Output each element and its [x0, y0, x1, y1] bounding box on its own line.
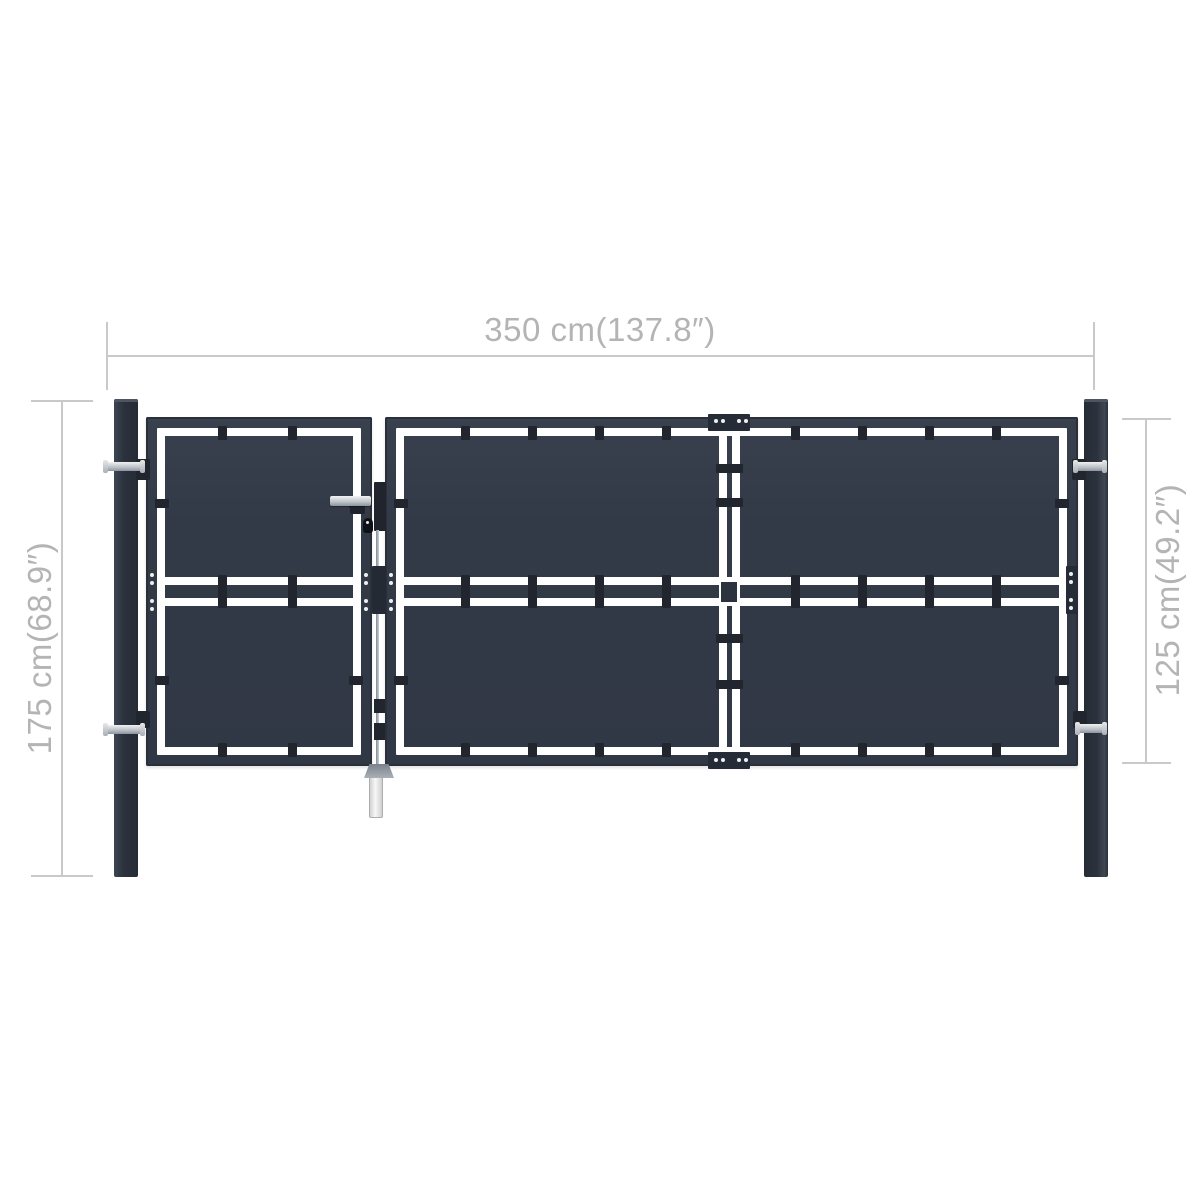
rail-clip: [992, 575, 1001, 608]
frame-clip: [461, 426, 470, 440]
rail-clip: [858, 575, 867, 608]
frame-clip: [218, 743, 227, 757]
gate-height-cap-bottom: [1122, 762, 1171, 764]
frame-clip: [925, 426, 934, 440]
frame-clip: [528, 743, 537, 757]
frame-clip: [992, 743, 1001, 757]
frame-clip: [349, 676, 363, 685]
rail-clip: [925, 575, 934, 608]
frame-clip: [528, 426, 537, 440]
frame-clip: [595, 426, 604, 440]
drop-rod-guide-upper: [374, 699, 385, 713]
bolt-dot: [150, 607, 154, 611]
width-dimension-label: 350 cm(137.8″): [400, 310, 800, 350]
frame-clip: [461, 743, 470, 757]
rail-clip: [461, 575, 470, 608]
rail-clip: [218, 575, 227, 608]
bolt-dot: [389, 581, 393, 585]
width-dimension-tick-left: [106, 322, 108, 390]
latch-plate: [374, 482, 386, 531]
post-height-dimension-label: 175 cm(68.9″): [20, 498, 60, 798]
rail-clip: [288, 575, 297, 608]
frame-clip: [1055, 499, 1069, 508]
frame-clip: [394, 676, 408, 685]
width-dimension-line: [107, 355, 1094, 357]
bolt-dot: [744, 758, 748, 762]
bolt-dot: [389, 573, 393, 577]
rail-clip: [791, 575, 800, 608]
bolt-dot: [364, 599, 368, 603]
divider-clip: [716, 634, 743, 643]
drop-rod: [369, 777, 383, 818]
bolt-dot: [721, 419, 725, 423]
bolt-dot: [150, 581, 154, 585]
mid-rail-gap-lower: [157, 598, 361, 606]
frame-clip: [858, 743, 867, 757]
frame-clip: [791, 426, 800, 440]
frame-clip: [595, 743, 604, 757]
frame-clip: [662, 743, 671, 757]
hinge-top-right-pin: [1074, 462, 1106, 471]
keyhole-highlight: [366, 521, 369, 524]
gate-height-dimension-label: 125 cm(49.2″): [1148, 440, 1188, 740]
gate-height-dimension-line: [1145, 418, 1147, 764]
bolt-dot: [737, 419, 741, 423]
post-height-dimension-line: [61, 400, 63, 877]
divider-clip: [716, 464, 743, 473]
drop-rod-bracket: [364, 764, 394, 778]
gate-left-leaf: [146, 417, 372, 766]
panel-frame-gap-outline: [157, 428, 361, 755]
bolt-dot: [714, 419, 718, 423]
hinge-top-left-pin: [104, 462, 144, 471]
bolt-dot: [150, 573, 154, 577]
frame-clip: [1055, 676, 1069, 685]
mid-rail-gap-upper: [157, 577, 361, 585]
rail-bracket: [1066, 566, 1078, 614]
drop-rod-guide-lower: [374, 723, 385, 740]
frame-clip: [155, 676, 169, 685]
gate-height-cap-top: [1122, 418, 1171, 420]
gate-right-leaf: [385, 417, 1078, 766]
gate-dimension-image: 350 cm(137.8″) 175 cm(68.9″) 125 cm(49.2…: [0, 0, 1200, 1200]
frame-clip: [662, 426, 671, 440]
frame-clip: [791, 743, 800, 757]
bolt-dot: [721, 758, 725, 762]
frame-clip: [992, 426, 1001, 440]
bolt-dot: [364, 607, 368, 611]
frame-clip: [858, 426, 867, 440]
frame-clip: [288, 426, 297, 440]
rail-clip: [528, 575, 537, 608]
frame-clip: [925, 743, 934, 757]
hinge-bottom-right-pin: [1076, 724, 1106, 733]
divider-clip: [716, 680, 743, 689]
frame-clip: [155, 499, 169, 508]
divider-clip: [716, 498, 743, 507]
frame-clip: [218, 426, 227, 440]
bolt-dot: [389, 607, 393, 611]
frame-clip: [394, 499, 408, 508]
width-dimension-tick-right: [1093, 322, 1095, 390]
bolt-dot: [150, 599, 154, 603]
bolt-dot: [714, 758, 718, 762]
post-height-cap-top: [31, 400, 93, 402]
gate-handle: [330, 496, 371, 506]
bolt-dot: [737, 758, 741, 762]
post-height-cap-bottom: [31, 875, 93, 877]
rail-clip: [595, 575, 604, 608]
bolt-dot: [364, 573, 368, 577]
bolt-dot: [744, 419, 748, 423]
center-rail-connector: [372, 566, 386, 614]
rail-divider-cross: [721, 582, 737, 602]
frame-clip: [288, 743, 297, 757]
bolt-dot: [389, 599, 393, 603]
bolt-dot: [364, 581, 368, 585]
rail-clip: [662, 575, 671, 608]
hinge-bottom-left-pin: [104, 725, 144, 734]
